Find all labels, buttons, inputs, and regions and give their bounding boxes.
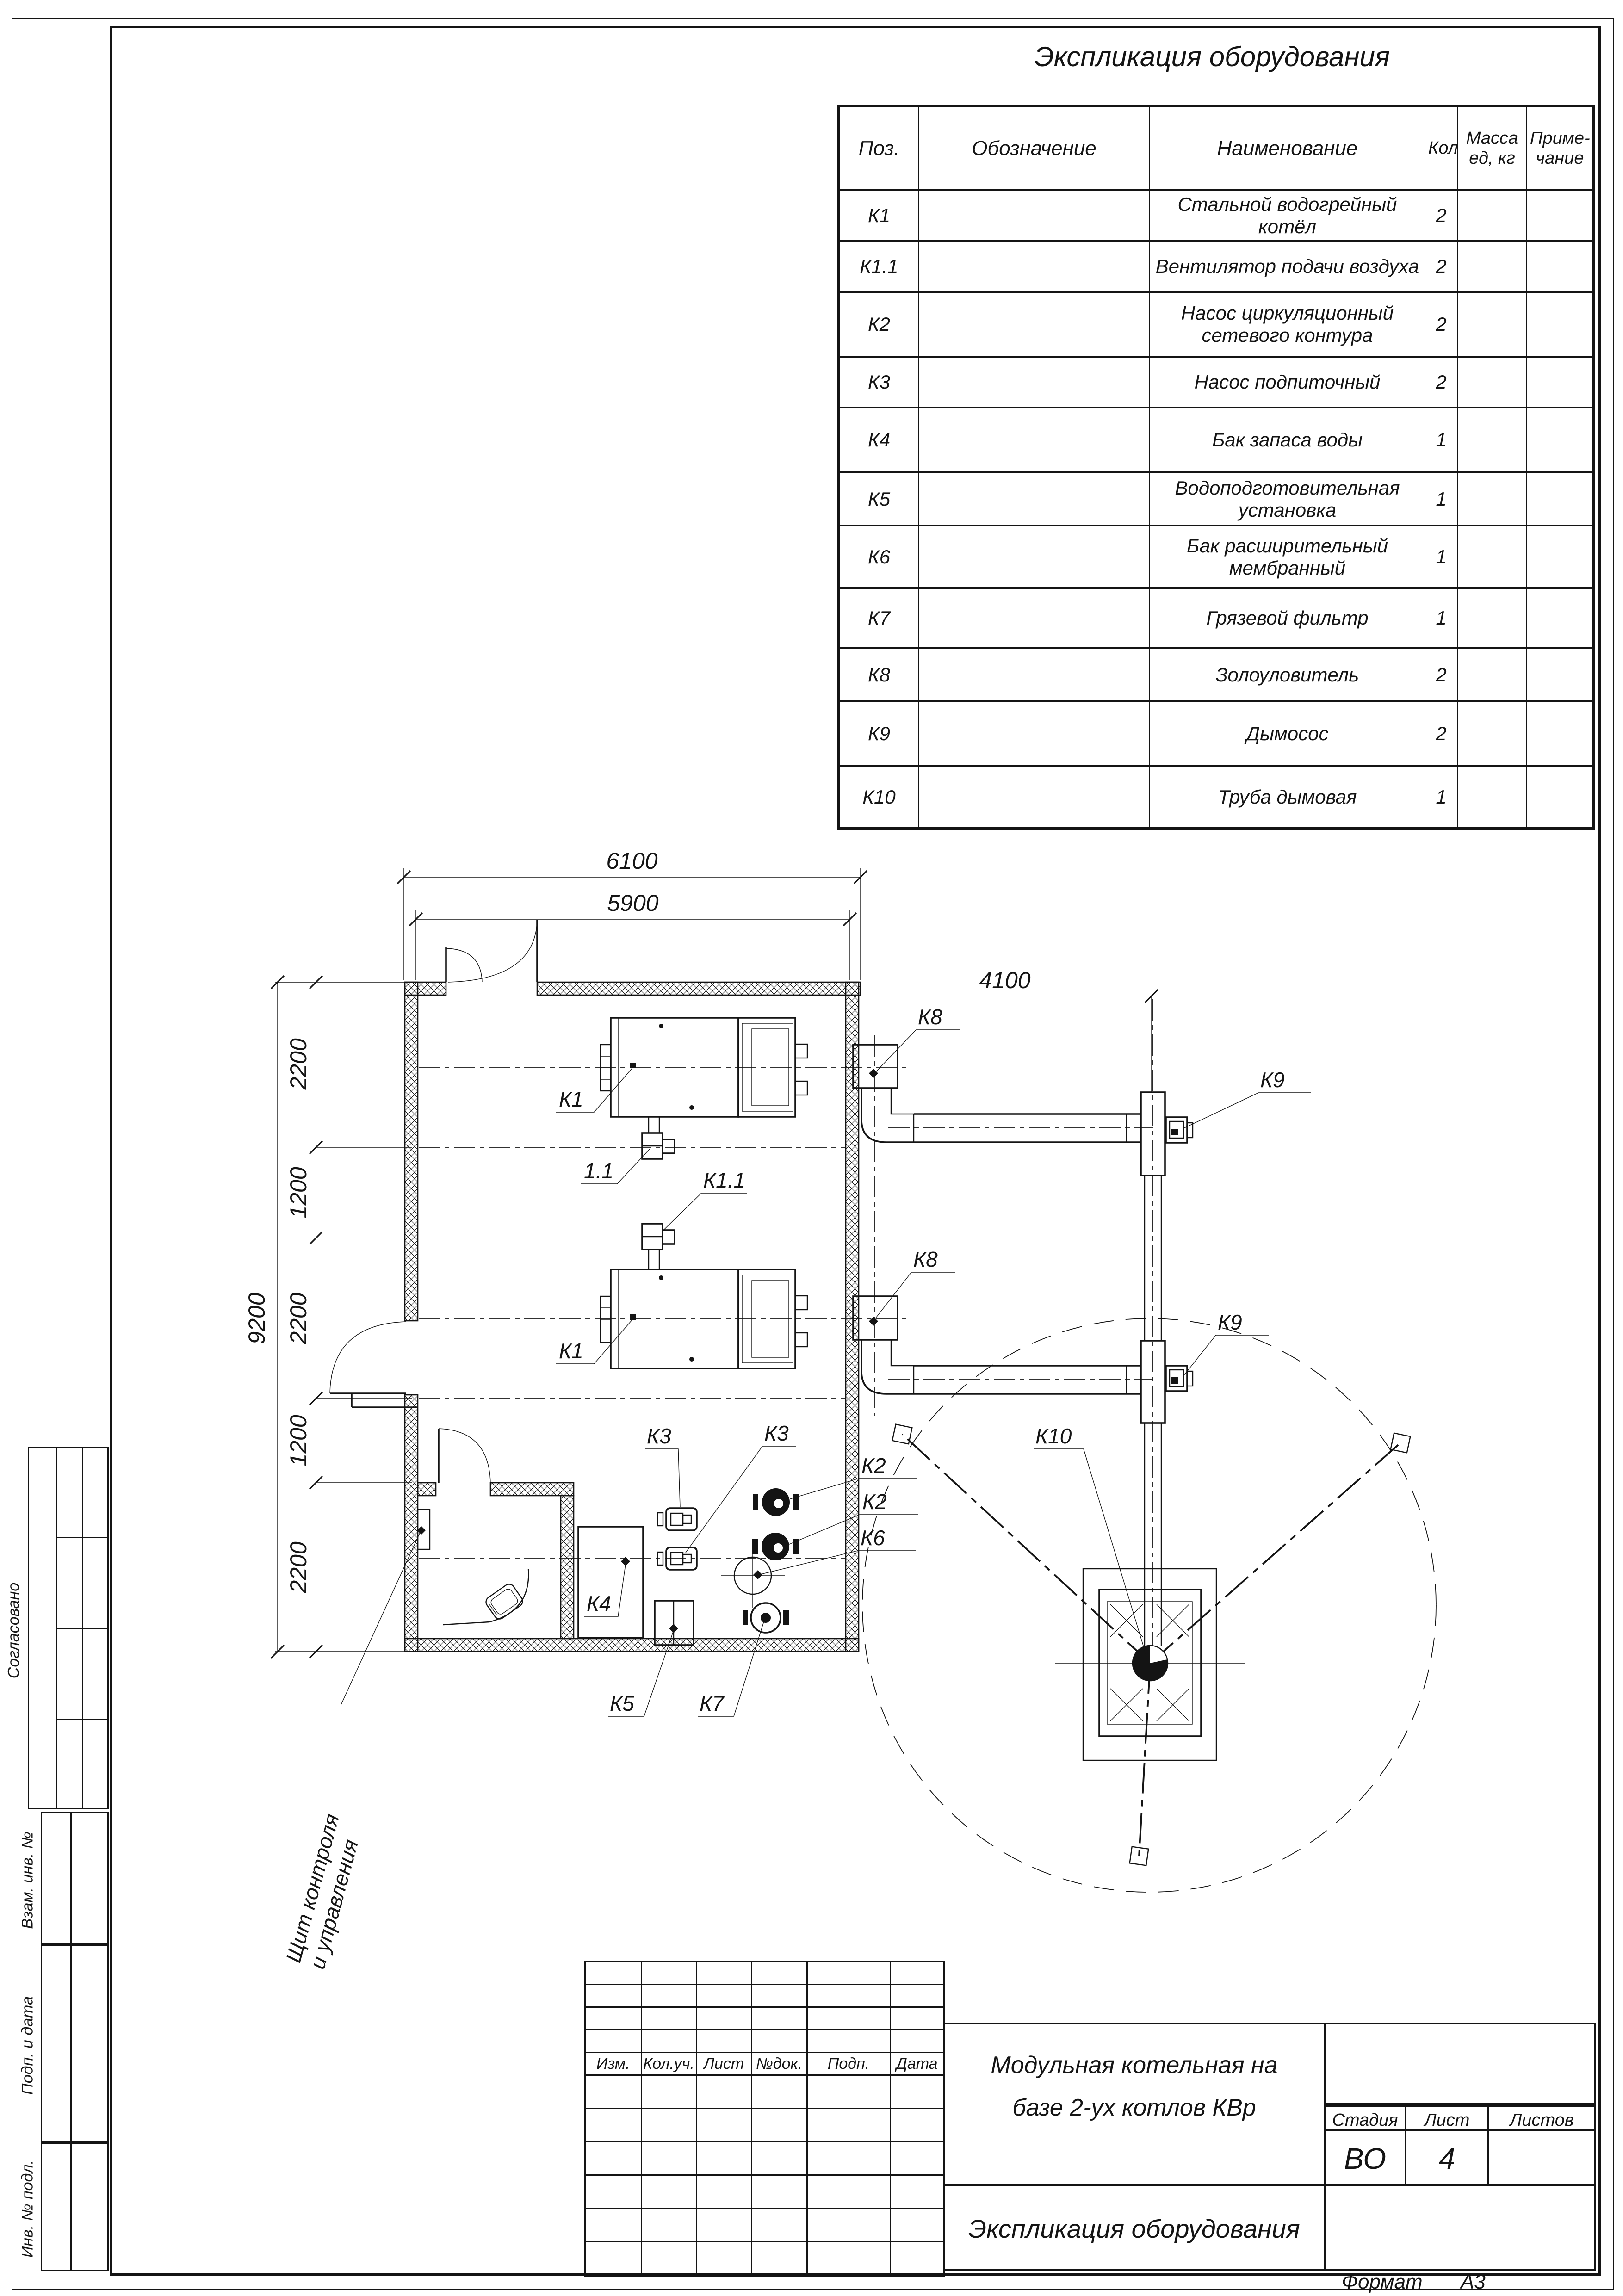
- sheet-label-cell: Лист: [1405, 2105, 1489, 2131]
- cell-pos: К8: [839, 648, 918, 701]
- stage-value: ВО: [1326, 2141, 1405, 2176]
- rev-row: [585, 1962, 944, 1985]
- sheets-label-cell: Листов: [1487, 2105, 1596, 2131]
- dimension-5900: 5900: [409, 890, 856, 980]
- doc-title-cell: Экспликация оборудования: [943, 2184, 1326, 2271]
- feed-pump-k3-1: [657, 1508, 697, 1530]
- cell-qty: 1: [1425, 526, 1457, 588]
- svg-text:К3: К3: [647, 1424, 671, 1448]
- sheet-number: 4: [1406, 2141, 1487, 2176]
- spec-row: К2Насос циркуляционный сетевого контура2: [839, 292, 1594, 357]
- stage-value-cell: ВО: [1324, 2129, 1406, 2186]
- cell-mass: [1457, 190, 1527, 241]
- cell-pos: К3: [839, 357, 918, 408]
- cell-qty: 2: [1425, 241, 1457, 292]
- col-header-qty: Кол.: [1425, 106, 1457, 190]
- cell-pos: К6: [839, 526, 918, 588]
- doc-title: Экспликация оборудования: [945, 2214, 1324, 2244]
- cell-designation: [918, 701, 1150, 766]
- col-header-designation: Обозначение: [918, 106, 1150, 190]
- svg-text:К6: К6: [861, 1526, 885, 1550]
- cell-note: [1527, 472, 1594, 526]
- rev-row: [585, 2209, 944, 2242]
- spec-row: К8Золоуловитель2: [839, 648, 1594, 701]
- cell-name: Дымосос: [1150, 701, 1425, 766]
- cell-note: [1527, 241, 1594, 292]
- rev-header-koluch: Кол.уч.: [641, 2053, 696, 2075]
- ash-catcher-k8-2: [853, 1296, 1153, 1394]
- spec-table-title: Экспликация оборудования: [981, 41, 1443, 73]
- dim-chain-4: 2200: [285, 1541, 311, 1593]
- rev-row: [585, 2175, 944, 2209]
- dim-chain-1: 1200: [285, 1167, 311, 1218]
- cell-mass: [1457, 357, 1527, 408]
- cell-name: Бак расширительный мембранный: [1150, 526, 1425, 588]
- cell-pos: К2: [839, 292, 918, 357]
- col-header-note-line2: чание: [1536, 149, 1584, 168]
- cell-designation: [918, 292, 1150, 357]
- cell-qty: 2: [1425, 190, 1457, 241]
- cell-designation: [918, 241, 1150, 292]
- cell-name: Насос циркуляционный сетевого контура: [1150, 292, 1425, 357]
- cell-qty: 1: [1425, 588, 1457, 648]
- col-header-mass-line2: ед, кг: [1469, 149, 1515, 168]
- svg-text:К1: К1: [559, 1087, 583, 1111]
- col-header-note-line1: Приме-: [1530, 129, 1590, 148]
- smoke-exhauster-k9-1: [1166, 1117, 1193, 1143]
- rev-row: [585, 1985, 944, 2007]
- label-k1-1-boiler: К1: [556, 1063, 636, 1112]
- boiler-1: [601, 1018, 807, 1133]
- cell-note: [1527, 357, 1594, 408]
- cell-name: Насос подпиточный: [1150, 357, 1425, 408]
- label-k1-2-boiler: К1: [556, 1314, 636, 1364]
- cell-note: [1527, 190, 1594, 241]
- cell-name: Бак запаса воды: [1150, 408, 1425, 472]
- rev-header-podp: Подп.: [807, 2053, 890, 2075]
- dim-chain-2: 2200: [285, 1293, 311, 1344]
- cell-pos: К4: [839, 408, 918, 472]
- cell-qty: 2: [1425, 357, 1457, 408]
- spec-row: К3Насос подпиточный2: [839, 357, 1594, 408]
- cell-qty: 1: [1425, 472, 1457, 526]
- stage-upper-cell: [1324, 2023, 1596, 2105]
- col-header-mass: Масса ед, кг: [1457, 106, 1527, 190]
- cell-pos: К5: [839, 472, 918, 526]
- spec-row: К5Водоподготовительная установка1: [839, 472, 1594, 526]
- label-k3-2: К3: [686, 1421, 796, 1553]
- rev-row: [585, 2075, 944, 2109]
- col-header-note: Приме- чание: [1527, 106, 1594, 190]
- cell-name: Золоуловитель: [1150, 648, 1425, 701]
- spec-table: Поз. Обозначение Наименование Кол. Масса…: [837, 105, 1595, 830]
- rev-row: [585, 2242, 944, 2276]
- cell-mass: [1457, 472, 1527, 526]
- col-header-pos: Поз.: [839, 106, 918, 190]
- format-value: А3: [1461, 2271, 1486, 2293]
- rev-row: [585, 2109, 944, 2142]
- svg-text:К8: К8: [918, 1005, 942, 1029]
- rev-row: [585, 2030, 944, 2053]
- centerlines: [419, 999, 1245, 1663]
- signature-area-cell: [1324, 2184, 1596, 2271]
- cell-note: [1527, 648, 1594, 701]
- stage-label-cell: Стадия: [1324, 2105, 1406, 2131]
- sheets-total-cell: [1487, 2129, 1596, 2186]
- spec-row: К9Дымосос2: [839, 701, 1594, 766]
- svg-text:К1: К1: [559, 1339, 583, 1363]
- cell-mass: [1457, 648, 1527, 701]
- dim-chain-0: 2200: [285, 1038, 311, 1090]
- rev-header-list: Лист: [696, 2053, 751, 2075]
- dim-total-width: 6100: [606, 848, 657, 874]
- cell-name: Вентилятор подачи воздуха: [1150, 241, 1425, 292]
- project-title-line1: Модульная котельная на: [945, 2051, 1324, 2079]
- cell-pos: К7: [839, 588, 918, 648]
- project-title-line2: базе 2-ух котлов КВр: [945, 2094, 1324, 2122]
- format-label: Формат: [1342, 2271, 1423, 2293]
- spec-row: К1Стальной водогрейный котёл2: [839, 190, 1594, 241]
- svg-text:К2: К2: [861, 1454, 886, 1478]
- dimension-9200: 9200: [244, 976, 412, 1658]
- label-k10: К10: [1034, 1424, 1146, 1656]
- cell-note: [1527, 766, 1594, 829]
- cell-name: Грязевой фильтр: [1150, 588, 1425, 648]
- stamp-vzam-label: Взам. инв. №: [19, 1825, 37, 1936]
- cell-mass: [1457, 526, 1527, 588]
- dimension-4100: 4100: [859, 967, 1158, 1092]
- label-k1-1-fan: К1.1: [662, 1168, 747, 1232]
- project-title-cell: Модульная котельная на базе 2-ух котлов …: [943, 2023, 1326, 2186]
- label-k4: К4: [584, 1565, 626, 1616]
- cell-mass: [1457, 241, 1527, 292]
- cell-note: [1527, 408, 1594, 472]
- col-header-mass-line1: Масса: [1466, 129, 1518, 148]
- svg-text:К1.1: К1.1: [703, 1168, 745, 1192]
- dimension-chain: 2200 1200 2200 1200 2200: [285, 976, 412, 1658]
- label-k9-1: К9: [1184, 1068, 1311, 1128]
- stamp-approved-label: Согласовано: [5, 1547, 23, 1714]
- cell-qty: 1: [1425, 408, 1457, 472]
- label-k3-1: К3: [645, 1424, 680, 1507]
- col-header-name: Наименование: [1150, 106, 1425, 190]
- cell-qty: 2: [1425, 701, 1457, 766]
- cell-mass: [1457, 588, 1527, 648]
- air-valve-1-1: [642, 1133, 675, 1159]
- cell-name: Стальной водогрейный котёл: [1150, 190, 1425, 241]
- dim-inner-width: 5900: [607, 890, 658, 916]
- spec-row: К7Грязевой фильтр1: [839, 588, 1594, 648]
- cell-note: [1527, 526, 1594, 588]
- cell-designation: [918, 472, 1150, 526]
- sink: [443, 1569, 528, 1625]
- door-top: [446, 920, 537, 982]
- cell-designation: [918, 408, 1150, 472]
- stamp-inv-label: Инв. № подл.: [19, 2154, 37, 2265]
- cell-designation: [918, 190, 1150, 241]
- svg-text:К3: К3: [764, 1421, 789, 1445]
- network-pump-k2-1: [753, 1488, 799, 1516]
- rev-row: [585, 2007, 944, 2030]
- svg-text:К9: К9: [1218, 1310, 1242, 1334]
- revision-table: Изм. Кол.уч. Лист №док. Подп. Дата: [584, 1961, 945, 2277]
- mud-filter-k7: [743, 1603, 789, 1633]
- ventilator-k1-1: [642, 1224, 675, 1269]
- format-note: Формат А3: [1342, 2271, 1582, 2294]
- cell-mass: [1457, 408, 1527, 472]
- cell-pos: К1.1: [839, 241, 918, 292]
- cell-designation: [918, 526, 1150, 588]
- svg-text:К5: К5: [610, 1691, 634, 1715]
- chimney-k10: [862, 1318, 1436, 1892]
- cell-qty: 2: [1425, 292, 1457, 357]
- label-valve-1-1: 1.1: [581, 1149, 650, 1184]
- stage-label: Стадия: [1326, 2110, 1405, 2130]
- sheet-label: Лист: [1406, 2110, 1487, 2130]
- svg-text:К10: К10: [1035, 1424, 1072, 1448]
- rev-row: [585, 2142, 944, 2175]
- svg-text:К9: К9: [1260, 1068, 1285, 1092]
- cell-mass: [1457, 292, 1527, 357]
- cell-pos: К1: [839, 190, 918, 241]
- label-k8-1: К8: [876, 1005, 960, 1071]
- cell-designation: [918, 588, 1150, 648]
- rev-header-row: Изм. Кол.уч. Лист №док. Подп. Дата: [585, 2053, 944, 2075]
- spec-row: К4Бак запаса воды1: [839, 408, 1594, 472]
- cell-designation: [918, 648, 1150, 701]
- stamp-podp-label: Подп. и дата: [19, 1990, 37, 2101]
- cell-qty: 2: [1425, 648, 1457, 701]
- drawing-sheet: Экспликация оборудования Поз. Обозначени…: [0, 0, 1623, 2296]
- cell-note: [1527, 701, 1594, 766]
- label-k7: К7: [698, 1620, 764, 1716]
- label-k9-2: К9: [1183, 1310, 1269, 1376]
- label-control-panel: Щит контроля и управления: [281, 1811, 368, 1971]
- label-k8-2: К8: [875, 1247, 955, 1318]
- cell-pos: К9: [839, 701, 918, 766]
- svg-text:К4: К4: [587, 1591, 611, 1615]
- svg-text:К8: К8: [913, 1247, 938, 1271]
- dim-chain-3: 1200: [285, 1415, 311, 1466]
- rev-header-izm: Изм.: [585, 2053, 641, 2075]
- cell-mass: [1457, 701, 1527, 766]
- sheets-label: Листов: [1489, 2110, 1594, 2130]
- spec-row: К6Бак расширительный мембранный1: [839, 526, 1594, 588]
- svg-text:К7: К7: [700, 1691, 725, 1715]
- network-pump-k2-2: [752, 1533, 799, 1560]
- rev-header-dok: №док.: [751, 2053, 807, 2075]
- cell-name: Водоподготовительная установка: [1150, 472, 1425, 526]
- cell-designation: [918, 357, 1150, 408]
- rev-header-data: Дата: [890, 2053, 944, 2075]
- door-room: [439, 1429, 490, 1483]
- water-tank-k4: [578, 1527, 643, 1638]
- svg-text:К2: К2: [862, 1490, 887, 1514]
- dim-flue-offset: 4100: [979, 967, 1030, 993]
- spec-header-row: Поз. Обозначение Наименование Кол. Масса…: [839, 106, 1594, 190]
- svg-text:1.1: 1.1: [584, 1159, 613, 1183]
- dim-total-height: 9200: [244, 1293, 270, 1344]
- sheet-number-cell: 4: [1405, 2129, 1489, 2186]
- plan-drawing: 6100 5900 4100 9200: [222, 805, 1527, 1989]
- cell-note: [1527, 588, 1594, 648]
- ash-catcher-k8-1: [853, 1045, 1153, 1142]
- cell-note: [1527, 292, 1594, 357]
- spec-row: К1.1Вентилятор подачи воздуха2: [839, 241, 1594, 292]
